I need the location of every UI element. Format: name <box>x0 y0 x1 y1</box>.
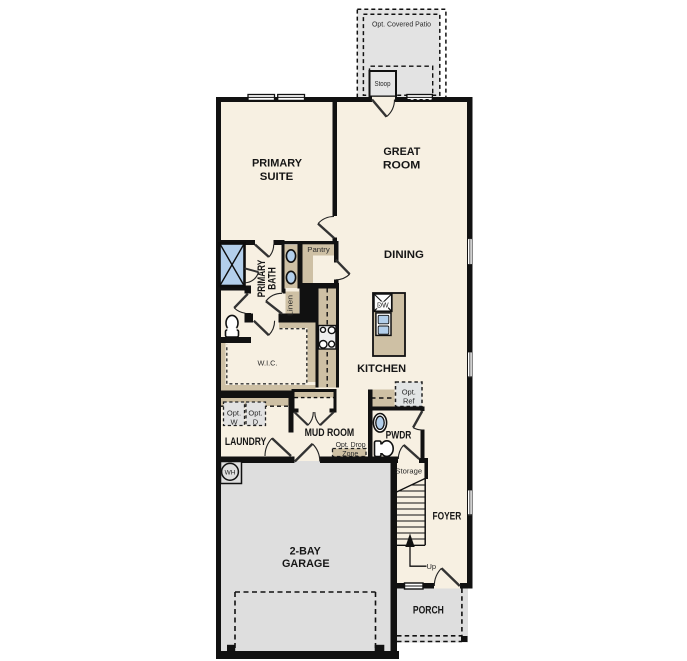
svg-text:GARAGE: GARAGE <box>282 558 330 570</box>
svg-text:FOYER: FOYER <box>433 511 462 523</box>
svg-text:KITCHEN: KITCHEN <box>357 363 406 375</box>
svg-text:PRIMARY: PRIMARY <box>252 158 303 170</box>
svg-text:Stoop: Stoop <box>375 79 391 88</box>
svg-text:W: W <box>230 418 238 427</box>
svg-text:Ref: Ref <box>403 397 416 406</box>
svg-text:PWDR: PWDR <box>386 430 412 442</box>
svg-text:DW: DW <box>377 302 389 309</box>
svg-text:2-BAY: 2-BAY <box>290 545 322 557</box>
svg-text:Pantry: Pantry <box>307 245 330 254</box>
svg-text:W.I.C.: W.I.C. <box>258 359 278 368</box>
svg-text:MUD ROOM: MUD ROOM <box>305 427 355 439</box>
svg-text:PORCH: PORCH <box>413 605 444 617</box>
svg-text:SUITE: SUITE <box>260 171 294 183</box>
svg-text:Zone: Zone <box>342 449 358 458</box>
svg-text:Up: Up <box>427 562 437 571</box>
svg-text:Linen: Linen <box>285 295 294 316</box>
svg-text:Opt. Drop: Opt. Drop <box>336 440 366 449</box>
svg-text:Storage: Storage <box>395 467 422 476</box>
svg-text:GREAT: GREAT <box>383 146 420 158</box>
svg-text:WH: WH <box>225 469 236 476</box>
svg-text:ROOM: ROOM <box>383 160 421 172</box>
svg-text:LAUNDRY: LAUNDRY <box>225 436 267 448</box>
svg-text:DINING: DINING <box>384 249 424 261</box>
svg-text:BATH: BATH <box>267 267 279 290</box>
svg-text:D: D <box>253 418 259 427</box>
svg-text:Opt.: Opt. <box>402 388 416 397</box>
svg-text:Opt. Covered Patio: Opt. Covered Patio <box>372 20 431 29</box>
svg-text:Opt.: Opt. <box>227 409 241 418</box>
svg-text:Opt.: Opt. <box>248 409 262 418</box>
